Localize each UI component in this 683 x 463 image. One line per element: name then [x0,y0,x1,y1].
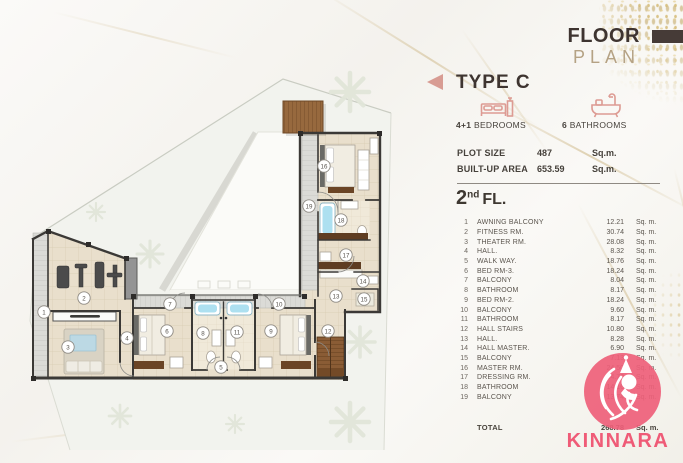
room-name: BATHROOM [477,316,577,323]
room-marker: 15 [358,293,370,305]
spec-label: PLOT SIZE [457,148,537,158]
room-marker: 19 [303,200,315,212]
svg-text:8: 8 [201,330,205,337]
page-title-plan: PLAN [573,47,640,68]
room-name: BALCONY [477,307,577,314]
bedrooms-label: 4+1 BEDROOMS [456,120,526,130]
floor-plan-drawing: 12345678910111213141516171819 [0,0,440,463]
room-marker: 12 [322,325,334,337]
spec-unit: Sq.m. [592,148,617,158]
room-row: 9 BED RM-2. 18.24 Sq. m. [455,296,656,306]
room-marker: 11 [231,326,243,338]
floor-label: FL. [482,191,506,208]
room-area: 10.80 [577,326,624,333]
floor-plan-brochure: 12345678910111213141516171819 FLOOR PLAN… [0,0,683,463]
room-number: 16 [455,365,468,372]
kinnara-logo [584,353,661,430]
svg-text:12: 12 [325,328,332,335]
spec-unit: Sq.m. [592,164,617,174]
room-name: BALCONY [477,394,577,401]
floor-ordinal-suffix: nd [467,190,479,201]
brand-name: KINNARA [552,430,683,453]
room-area: 8.04 [577,277,624,284]
svg-text:15: 15 [361,296,368,303]
room-number: 13 [455,336,468,343]
room-area: 18.76 [577,258,624,265]
room-unit: Sq. m. [636,239,656,246]
room-name: HALL. [477,248,577,255]
room-row: 10 BALCONY 9.60 Sq. m. [455,305,656,315]
room-marker: 16 [318,160,330,172]
room-marker: 1 [38,306,50,318]
awning-balcony [33,233,48,378]
room-name: MASTER RM. [477,365,577,372]
room-unit: Sq. m. [636,287,656,294]
room-name: BED RM-3. [477,268,577,275]
room-marker: 9 [265,325,277,337]
spec-row-plot-size: PLOT SIZE 487 Sq.m. [457,145,617,161]
room-name: BATHROOM [477,384,577,391]
svg-text:17: 17 [343,252,350,259]
left-arrow-icon [427,74,443,90]
room-number: 15 [455,355,468,362]
svg-text:10: 10 [276,301,283,308]
room-unit: Sq. m. [636,326,656,333]
room-marker: 5 [215,361,227,373]
room-marker: 14 [357,275,369,287]
unit-type-title: TYPE C [456,72,531,94]
svg-text:14: 14 [360,278,367,285]
room-unit: Sq. m. [636,307,656,314]
room-row: 8 BATHROOM 8.17 Sq. m. [455,286,656,296]
room-area: 8.28 [577,336,624,343]
title-accent-bar [652,30,683,43]
room-name: HALL STAIRS [477,326,577,333]
room-name: WALK WAY. [477,258,577,265]
room-marker: 4 [121,332,133,344]
spec-value: 653.59 [537,164,592,174]
room-area: 12.21 [577,219,624,226]
room-unit: Sq. m. [636,219,656,226]
room-name: THEATER RM. [477,239,577,246]
room-area: 28.08 [577,239,624,246]
svg-text:13: 13 [333,293,340,300]
spec-row-built-up-area: BUILT-UP AREA 653.59 Sq.m. [457,161,617,177]
room-area: 18.24 [577,268,624,275]
room-number: 4 [455,248,468,255]
bed-icon [480,95,514,119]
room-number: 11 [455,316,468,323]
kinnara-figure-icon [584,353,661,430]
room-area: 8.17 [577,287,624,294]
room-marker: 3 [62,341,74,353]
bedrooms-count: 4+1 [456,120,471,130]
room-marker: 2 [78,292,90,304]
room-name: HALL MASTER. [477,345,577,352]
room-name: FITNESS RM. [477,229,577,236]
room-number: 10 [455,307,468,314]
room-name: BED RM-2. [477,297,577,304]
room-number: 14 [455,345,468,352]
room-unit: Sq. m. [636,297,656,304]
room-row: 2 FITNESS RM. 30.74 Sq. m. [455,228,656,238]
room-row: 4 HALL. 8.32 Sq. m. [455,247,656,257]
room-number: 9 [455,297,468,304]
room-number: 12 [455,326,468,333]
room-number: 6 [455,268,468,275]
room-row: 3 THEATER RM. 28.08 Sq. m. [455,237,656,247]
svg-text:16: 16 [321,163,328,170]
room-marker: 6 [161,325,173,337]
room-row: 1 AWNING BALCONY 12.21 Sq. m. [455,218,656,228]
room-number: 2 [455,229,468,236]
section-divider [457,183,660,184]
svg-text:4: 4 [125,335,129,342]
svg-text:19: 19 [306,203,313,210]
bathrooms-label: 6 BATHROOMS [562,120,627,130]
room-row: 7 BALCONY 8.04 Sq. m. [455,276,656,286]
room-marker: 18 [335,214,347,226]
total-spacer [455,423,468,432]
room-name: HALL. [477,336,577,343]
room-row: 5 WALK WAY. 18.76 Sq. m. [455,257,656,267]
spec-label: BUILT-UP AREA [457,164,537,174]
room-number: 7 [455,277,468,284]
floor-number: 2 [456,187,467,209]
svg-text:5: 5 [219,364,223,371]
room-unit: Sq. m. [636,258,656,265]
svg-text:1: 1 [42,309,46,316]
room-name: AWNING BALCONY [477,219,577,226]
room-unit: Sq. m. [636,268,656,275]
spec-value: 487 [537,148,592,158]
bathrooms-text: BATHROOMS [567,120,627,130]
room-area: 6.90 [577,345,624,352]
room-name: DRESSING RM. [477,374,577,381]
room-area: 18.24 [577,297,624,304]
room-row: 11 BATHROOM 8.17 Sq. m. [455,315,656,325]
room-number: 8 [455,287,468,294]
room-area: 8.17 [577,316,624,323]
room-name: BALCONY [477,277,577,284]
room-unit: Sq. m. [636,248,656,255]
svg-text:9: 9 [269,328,273,335]
room-row: 12 HALL STAIRS 10.80 Sq. m. [455,325,656,335]
room-area: 9.60 [577,307,624,314]
svg-text:6: 6 [165,328,169,335]
room-area: 8.32 [577,248,624,255]
room-number: 3 [455,239,468,246]
pergola [283,101,326,136]
svg-text:11: 11 [234,329,241,336]
room-unit: Sq. m. [636,336,656,343]
room-unit: Sq. m. [636,277,656,284]
floor-number-heading: 2ndFL. [456,187,506,210]
svg-text:3: 3 [66,344,70,351]
bathtub-icon [590,92,622,119]
room-number: 19 [455,394,468,401]
room-number: 18 [455,384,468,391]
room-name: BATHROOM [477,287,577,294]
room-unit: Sq. m. [636,229,656,236]
room-marker: 10 [273,298,285,310]
room-number: 17 [455,374,468,381]
room-row: 6 BED RM-3. 18.24 Sq. m. [455,266,656,276]
room-area: 30.74 [577,229,624,236]
elevator-shaft [125,258,137,299]
room-number: 5 [455,258,468,265]
room-marker: 13 [330,290,342,302]
page-title-floor: FLOOR [568,25,641,48]
room-marker: 17 [340,249,352,261]
room-row: 13 HALL. 8.28 Sq. m. [455,334,656,344]
svg-text:2: 2 [82,295,86,302]
svg-text:18: 18 [338,217,345,224]
spec-table: PLOT SIZE 487 Sq.m. BUILT-UP AREA 653.59… [457,145,617,177]
room-unit: Sq. m. [636,316,656,323]
room-marker: 7 [164,298,176,310]
room-number: 1 [455,219,468,226]
bedrooms-text: BEDROOMS [471,120,526,130]
room-marker: 8 [197,327,209,339]
svg-text:7: 7 [168,301,172,308]
room-unit: Sq. m. [636,345,656,352]
room-name: BALCONY [477,355,577,362]
